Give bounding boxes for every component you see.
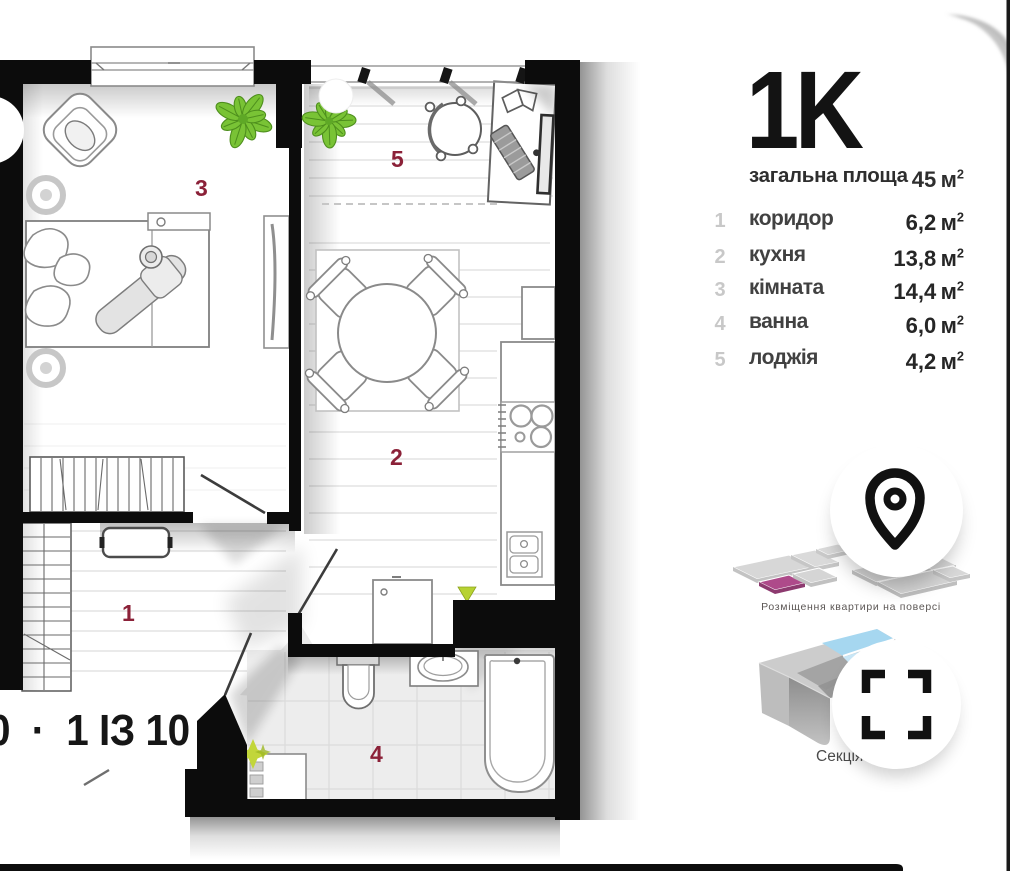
svg-text:4: 4 bbox=[370, 741, 383, 767]
svg-text:2: 2 bbox=[390, 444, 403, 470]
svg-text:5: 5 bbox=[391, 146, 404, 172]
svg-text:1: 1 bbox=[122, 600, 135, 626]
svg-text:3: 3 bbox=[195, 175, 208, 201]
